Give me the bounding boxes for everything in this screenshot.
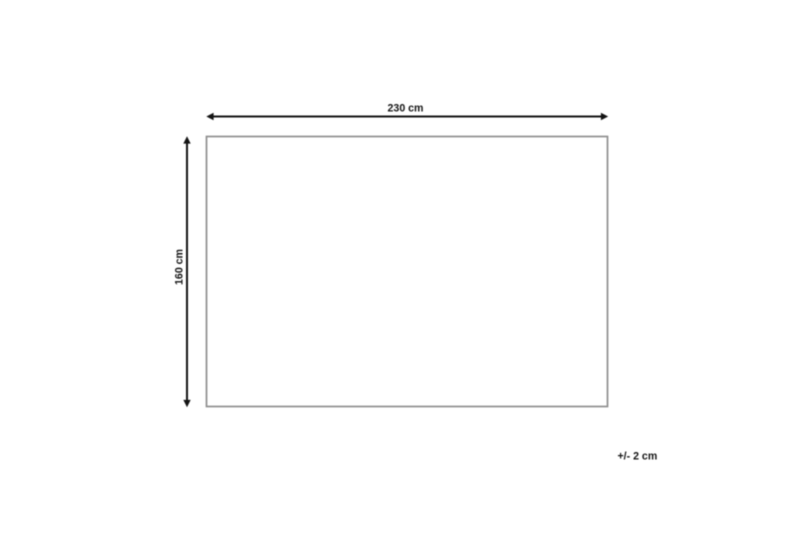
svg-text:+/- 2 cm: +/- 2 cm bbox=[618, 451, 658, 463]
svg-text:230 cm: 230 cm bbox=[388, 103, 424, 115]
svg-text:160 cm: 160 cm bbox=[174, 249, 186, 285]
